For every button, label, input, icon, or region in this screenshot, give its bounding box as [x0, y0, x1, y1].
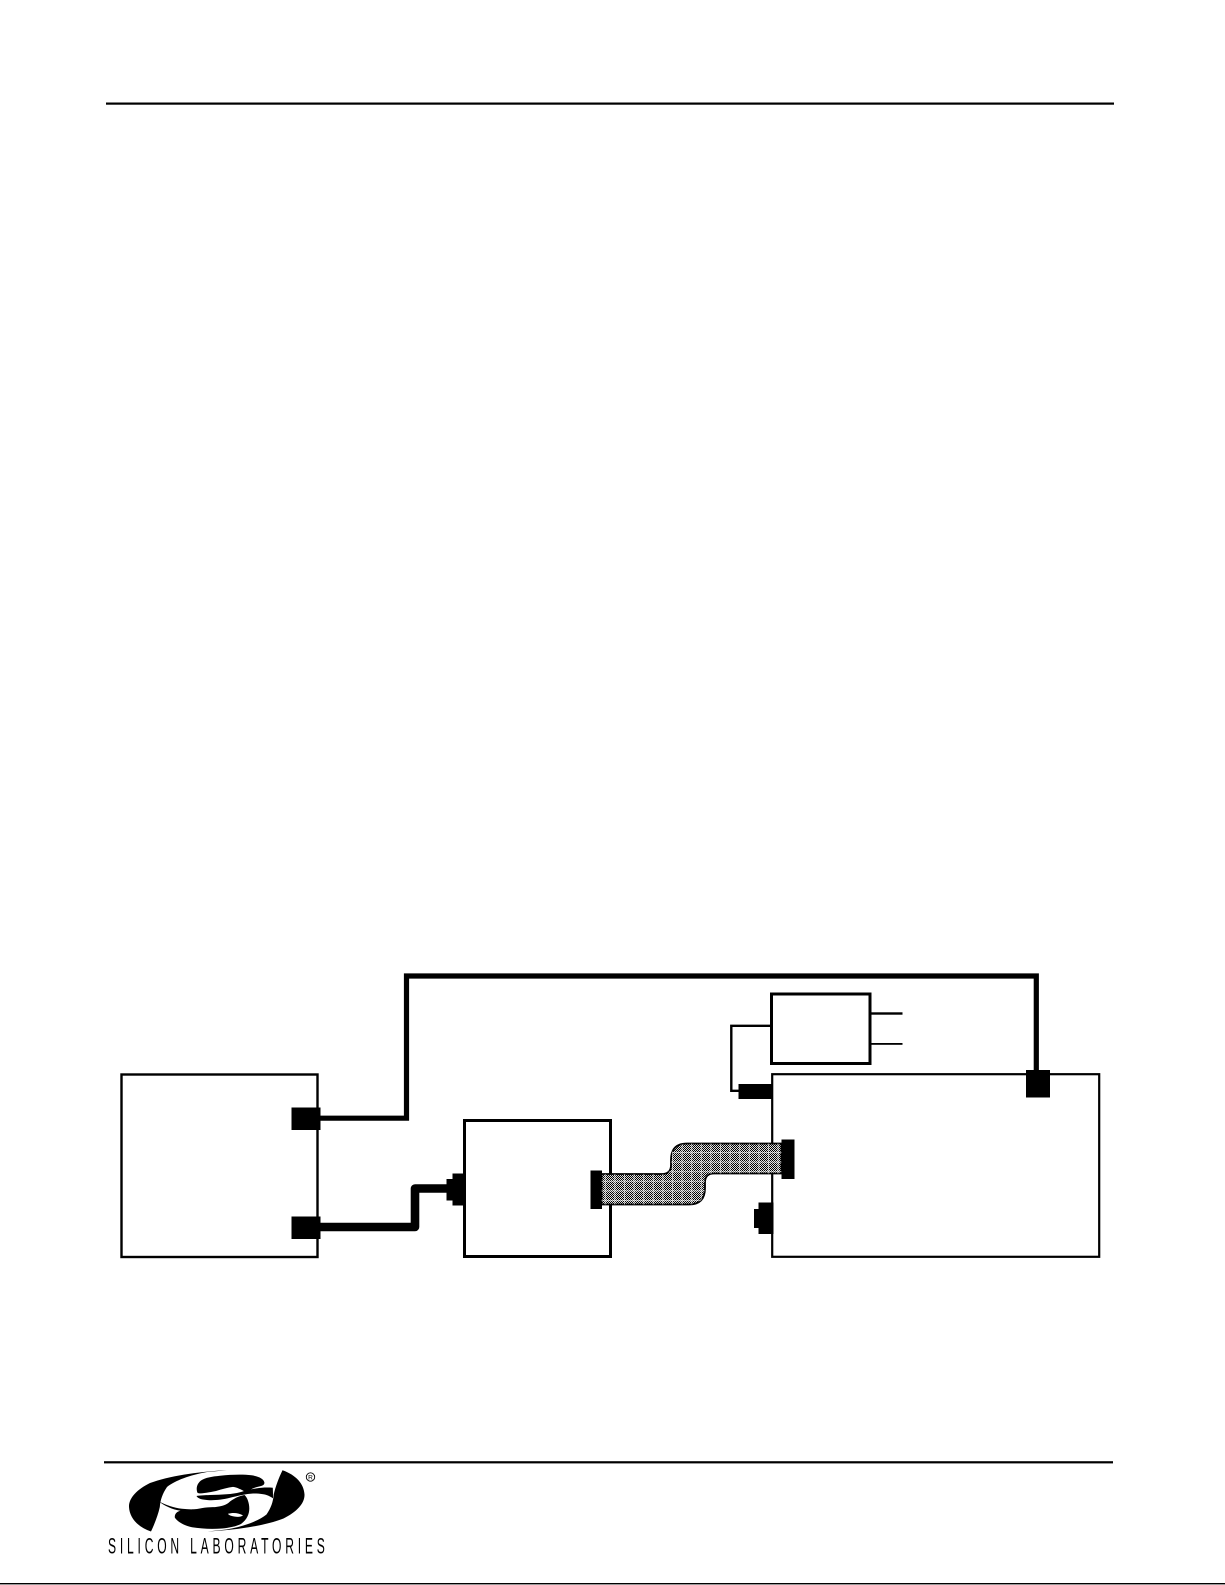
svg-text:R: R [308, 1475, 313, 1482]
svg-text:SILICON LABORATORIES: SILICON LABORATORIES [108, 1534, 329, 1559]
